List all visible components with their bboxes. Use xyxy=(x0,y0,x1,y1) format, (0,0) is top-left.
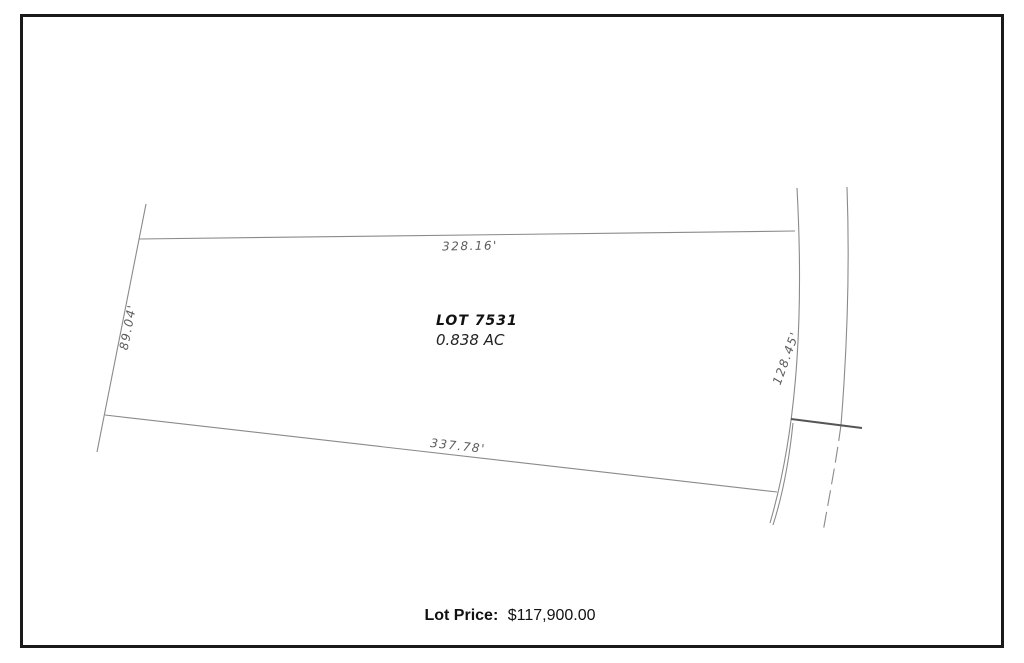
east-boundary-double-line xyxy=(773,423,793,525)
south-boundary-line xyxy=(105,415,777,492)
lot-price-line: Lot Price: $117,900.00 xyxy=(424,607,595,625)
road-outer-curve-upper xyxy=(841,187,848,425)
survey-tick-mark xyxy=(791,419,862,428)
plat-page: 328.16' 337.78' 89.04' 128.45' LOT 7531 … xyxy=(0,0,1024,663)
lot-name-label: LOT 7531 xyxy=(436,313,518,329)
north-boundary-line xyxy=(139,231,795,239)
north-dimension-label: 328.16' xyxy=(442,239,498,254)
lot-info-block: LOT 7531 0.838 AC xyxy=(436,313,518,349)
lot-area-label: 0.838 AC xyxy=(436,331,518,349)
lot-price-value: $117,900.00 xyxy=(508,607,596,624)
road-outer-curve-lower-dashed xyxy=(823,425,841,532)
lot-price-label: Lot Price: xyxy=(424,607,498,624)
